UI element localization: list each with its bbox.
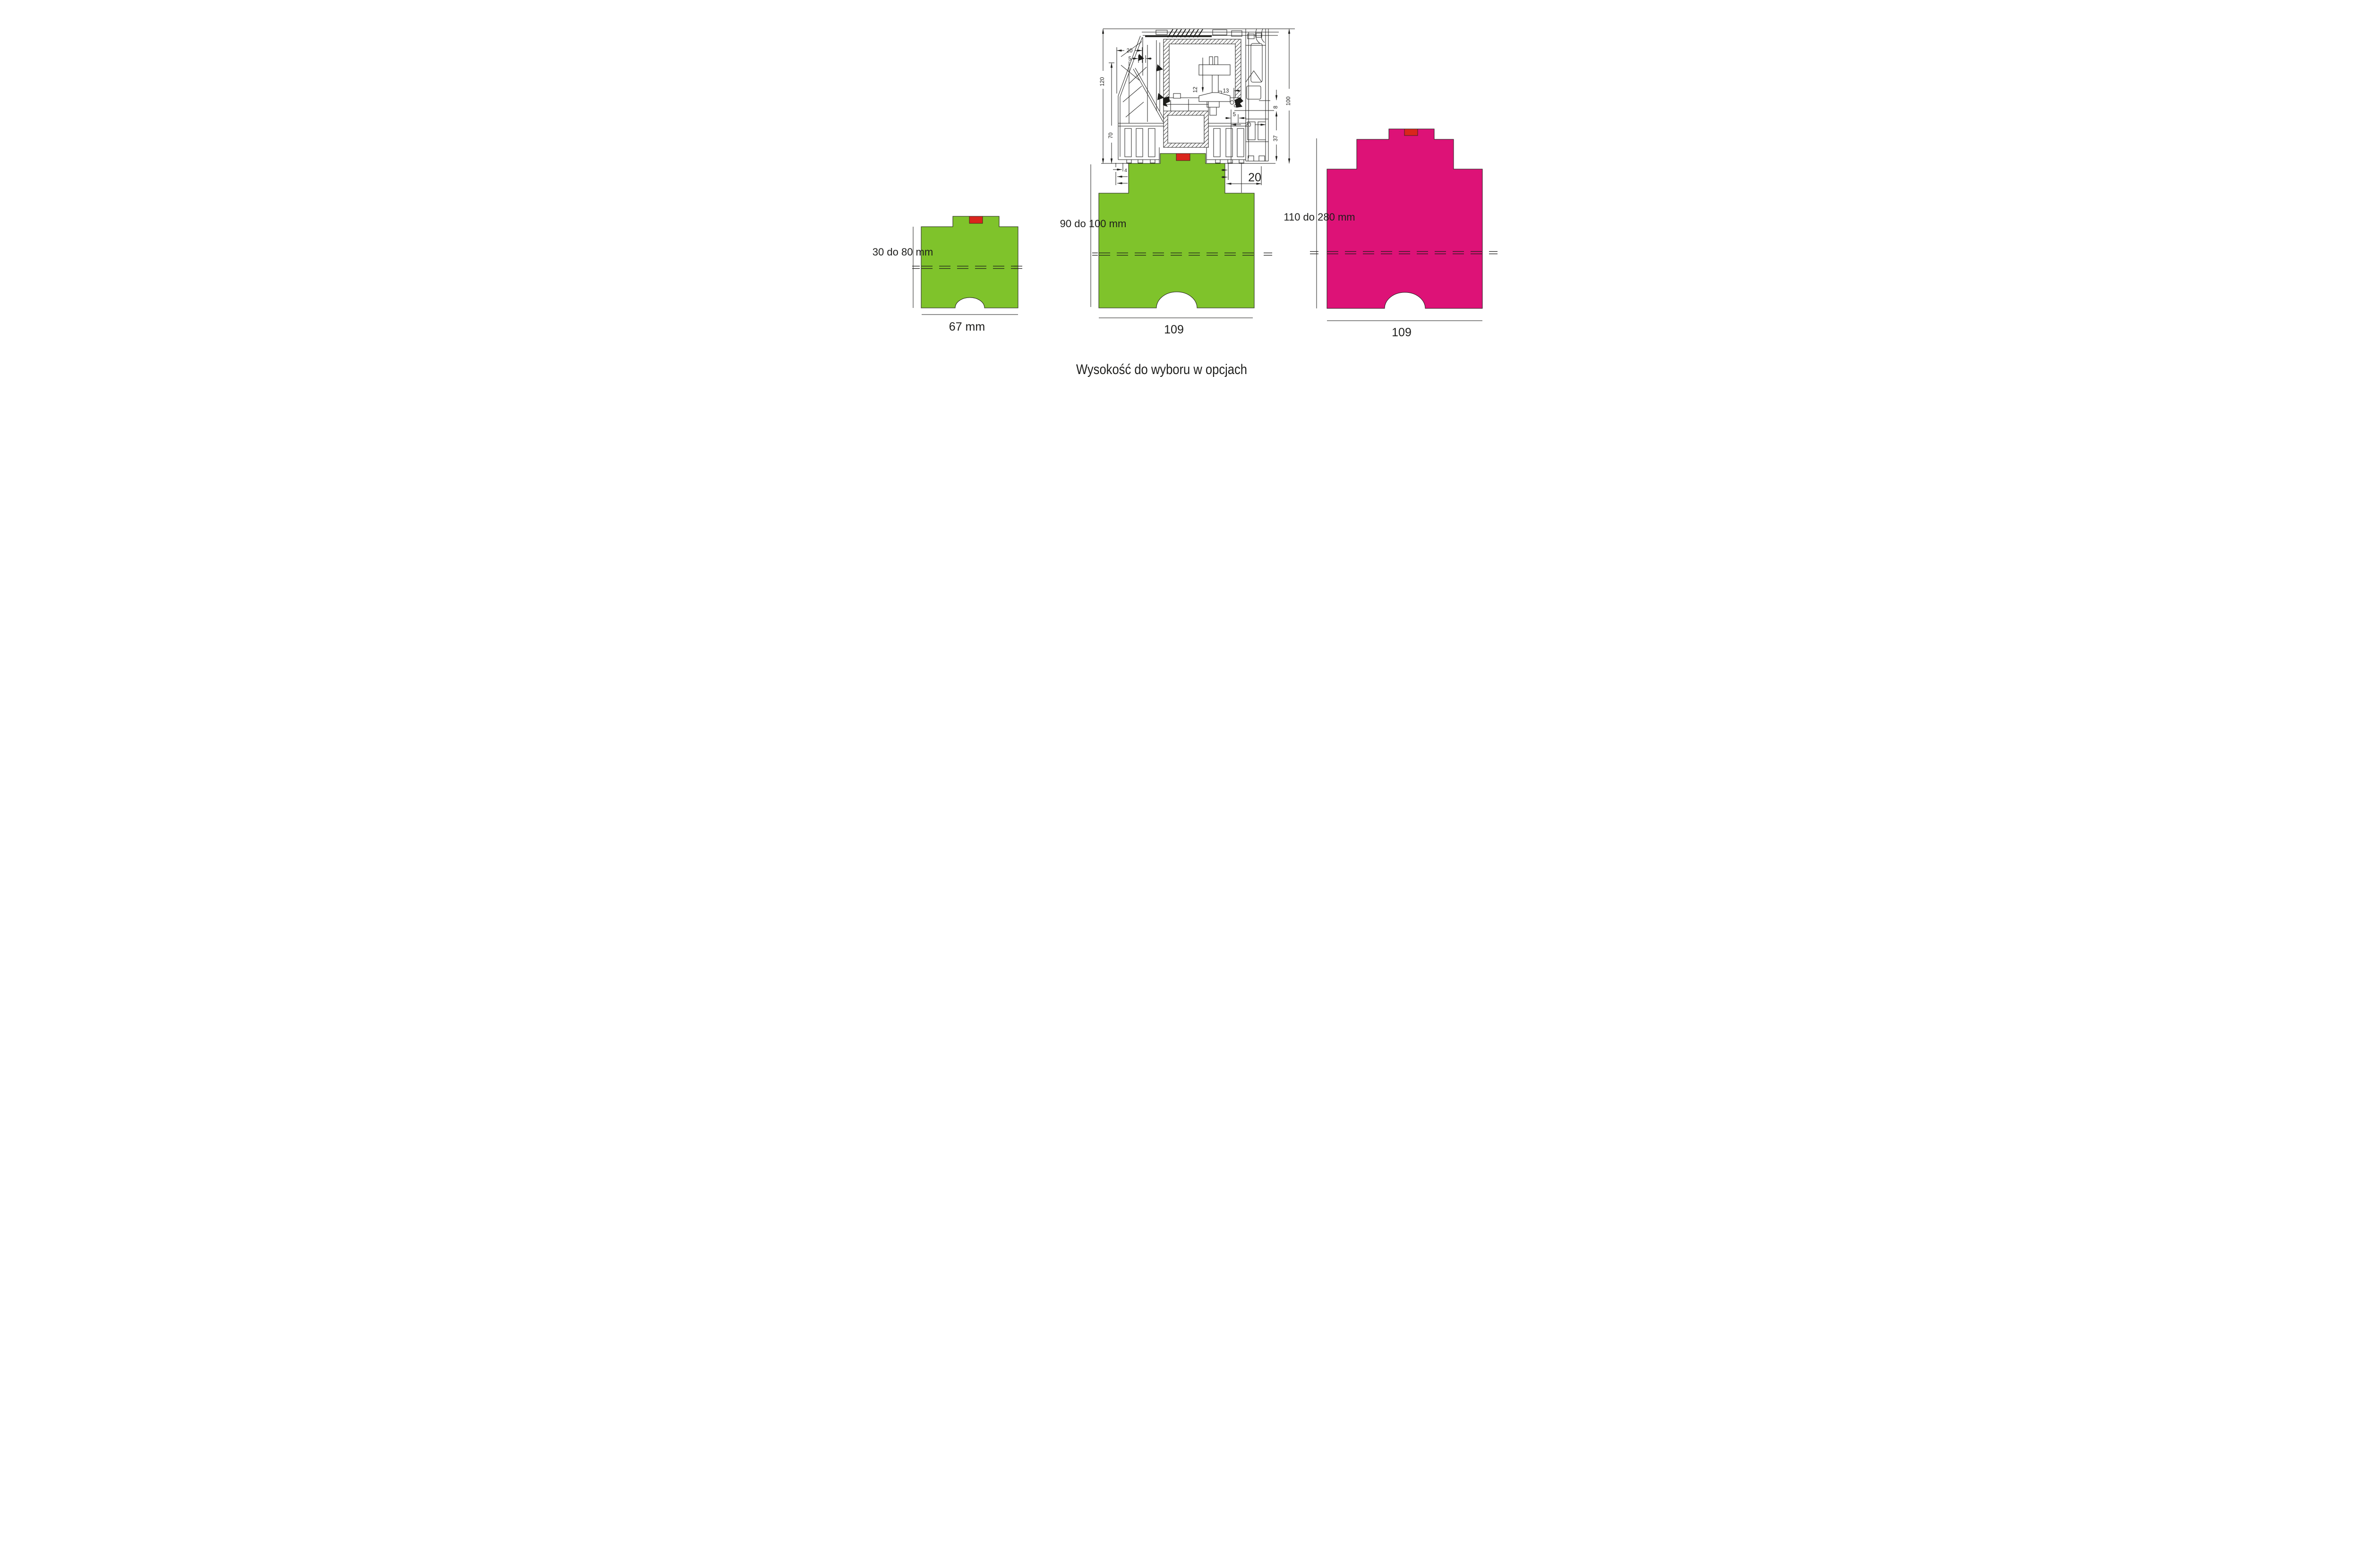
gasket-right xyxy=(1234,97,1243,108)
dim-label-8: 8 xyxy=(1273,106,1279,109)
dim-label-13: 13 xyxy=(1223,88,1229,94)
profile-large-width-label: 109 xyxy=(1392,326,1412,339)
profile-small-insert xyxy=(969,216,983,223)
steel-reinforcement-lower xyxy=(1164,111,1208,147)
dim-label-5-lower: 5 xyxy=(1233,112,1236,118)
profile-large-insert xyxy=(1404,129,1418,136)
profile-medium-step-label: 4 xyxy=(1124,168,1127,173)
dim-label-20-lower: 20 xyxy=(1245,122,1251,128)
diagram-canvas: 120 70 20 5 12 13 xyxy=(854,0,1508,392)
dim-label-5-top: 5 xyxy=(1129,56,1131,62)
profile-large: 110 do 280 mm 109 xyxy=(1284,129,1498,339)
profile-small-width-label: 67 mm xyxy=(949,320,985,333)
drawing-right-frame xyxy=(1246,29,1268,161)
dim-label-20-top: 20 xyxy=(1127,48,1133,54)
dim-label-120: 120 xyxy=(1100,77,1105,86)
dim-label-70: 70 xyxy=(1108,133,1114,139)
profile-diagram: 120 70 20 5 12 13 xyxy=(854,0,1508,392)
profile-medium-insert xyxy=(1176,153,1190,161)
gasket-left xyxy=(1163,96,1170,107)
technical-drawing: 120 70 20 5 12 13 xyxy=(1099,29,1295,163)
profile-small-body xyxy=(921,216,1018,308)
dim-label-100: 100 xyxy=(1286,96,1292,105)
profile-small: 30 do 80 mm 67 mm xyxy=(873,216,1022,333)
profile-medium-top-width-label: 20 xyxy=(1248,171,1261,184)
caption: Wysokość do wyboru w opcjach xyxy=(1076,362,1247,377)
profile-large-height-label: 110 do 280 mm xyxy=(1284,211,1355,223)
profile-medium-height-label: 90 do 100 mm xyxy=(1060,218,1127,230)
profile-medium-width-label: 109 xyxy=(1164,323,1184,336)
dim-label-37: 37 xyxy=(1273,136,1279,142)
dim-label-12: 12 xyxy=(1193,87,1198,93)
profile-medium: 90 do 100 mm 109 4 20 xyxy=(1060,153,1272,336)
profile-small-height-label: 30 do 80 mm xyxy=(873,246,933,258)
